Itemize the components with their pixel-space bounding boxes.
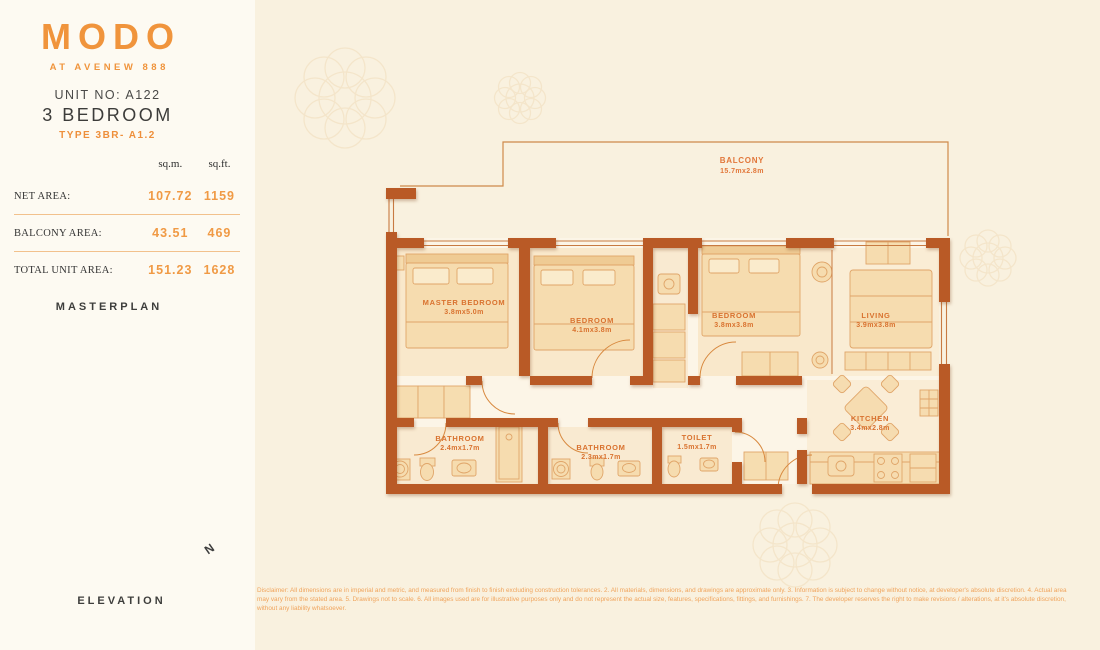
table-row-total-area: TOTAL UNIT AREA: 151.23 1628 bbox=[14, 252, 240, 289]
area-table-corner bbox=[14, 152, 142, 178]
disclaimer-text: Disclaimer: All dimensions are in imperi… bbox=[257, 587, 1075, 614]
row-sqft: 1159 bbox=[199, 178, 240, 215]
brand-tagline: AT AVENEW 888 bbox=[0, 62, 215, 73]
area-table: sq.m. sq.ft. NET AREA: 107.72 1159 BALCO… bbox=[14, 152, 240, 288]
info-sidebar: MODO AT AVENEW 888 UNIT NO: A122 3 BEDRO… bbox=[0, 0, 255, 650]
row-sqft: 469 bbox=[199, 215, 240, 252]
room-label-kitchen: KITCHEN 3.4mx2.8m bbox=[850, 414, 889, 434]
room-label-toilet: TOILET 1.5mx1.7m bbox=[677, 433, 716, 453]
row-label: TOTAL UNIT AREA: bbox=[14, 252, 142, 289]
floorplan-page: MODO AT AVENEW 888 UNIT NO: A122 3 BEDRO… bbox=[0, 0, 1100, 650]
room-label-balcony: BALCONY 15.7mx2.8m bbox=[720, 156, 764, 176]
sqm-header: sq.m. bbox=[142, 152, 199, 178]
unit-type-code: TYPE 3BR- A1.2 bbox=[0, 130, 215, 141]
room-label-bedroom-3: BEDROOM 3.8mx3.8m bbox=[712, 311, 756, 331]
room-label-living: LIVING 3.9mx3.8m bbox=[856, 311, 895, 331]
row-label: NET AREA: bbox=[14, 178, 142, 215]
row-sqft: 1628 bbox=[199, 252, 240, 289]
elevation-title: ELEVATION bbox=[0, 595, 240, 607]
room-label-bathroom-1: BATHROOM 2.4mx1.7m bbox=[435, 434, 484, 454]
unit-number: UNIT NO: A122 bbox=[0, 88, 215, 102]
unit-bedrooms: 3 BEDROOM bbox=[0, 105, 215, 126]
row-sqm: 151.23 bbox=[142, 252, 199, 289]
table-row-net-area: NET AREA: 107.72 1159 bbox=[14, 178, 240, 215]
row-label: BALCONY AREA: bbox=[14, 215, 142, 252]
row-sqm: 107.72 bbox=[142, 178, 199, 215]
row-sqm: 43.51 bbox=[142, 215, 199, 252]
brand-logo: MODO bbox=[0, 16, 215, 58]
balcony-outline bbox=[400, 142, 948, 236]
room-label-bathroom-2: BATHROOM 2.3mx1.7m bbox=[576, 443, 625, 463]
room-label-master-bedroom: MASTER BEDROOM 3.8mx5.0m bbox=[423, 298, 506, 318]
masterplan-title: MASTERPLAN bbox=[0, 301, 215, 313]
table-row-balcony-area: BALCONY AREA: 43.51 469 bbox=[14, 215, 240, 252]
room-label-bedroom-2: BEDROOM 4.1mx3.8m bbox=[570, 316, 614, 336]
compass-north-label: N bbox=[202, 541, 217, 557]
sqft-header: sq.ft. bbox=[199, 152, 240, 178]
